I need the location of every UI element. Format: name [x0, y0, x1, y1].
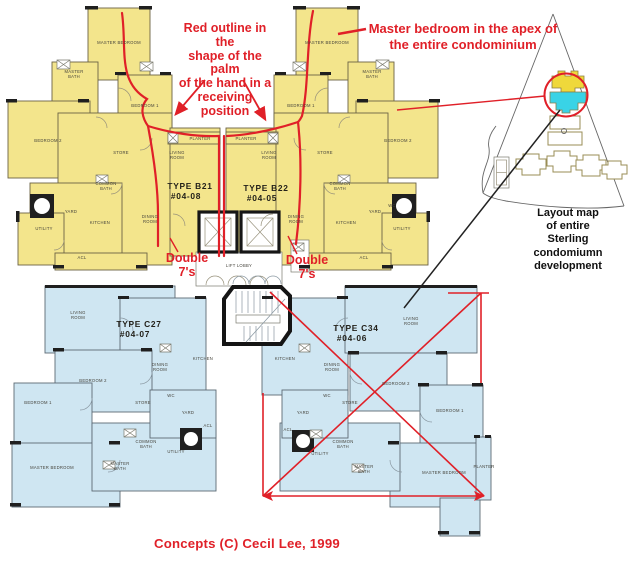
text-line: Double — [161, 251, 213, 265]
room-label: BEDROOM 2 — [79, 378, 107, 383]
room-label: PLANTER — [473, 464, 494, 469]
room-label: ROOM — [143, 219, 157, 224]
room-label: BATH — [68, 74, 80, 79]
room-label: YARD — [182, 410, 194, 415]
room-label: BATH — [358, 469, 370, 474]
master-bedroom-annotation: Master bedroom in the apex ofthe entire … — [366, 21, 560, 52]
double-sevens-right-label: Double7's — [281, 253, 333, 281]
room-label: PLANTER — [235, 136, 256, 141]
room-label: UTILITY — [35, 226, 52, 231]
room-label: UTILITY — [311, 451, 328, 456]
room-label: STORE — [135, 400, 151, 405]
unit-type-label: TYPE C27 — [116, 319, 161, 329]
staircase — [224, 276, 290, 344]
unit-type-label: TYPE B22 — [243, 183, 288, 193]
room-label: UTILITY — [393, 226, 410, 231]
unit-type-label: TYPE C34 — [333, 323, 378, 333]
credit-line: Concepts (C) Cecil Lee, 1999 — [154, 536, 340, 551]
room-label: ACL — [204, 423, 213, 428]
room-label: ROOM — [325, 367, 339, 372]
room-label: ROOM — [289, 219, 303, 224]
room-label: KITCHEN — [336, 220, 356, 225]
text-line: 7's — [281, 267, 333, 281]
room-label: LIFT LOBBY — [226, 263, 252, 268]
unit-number-label: #04-07 — [120, 329, 150, 339]
room-label: KITCHEN — [193, 356, 213, 361]
room-label: ACL — [360, 255, 369, 260]
room-label: MASTER BEDROOM — [97, 40, 141, 45]
room-label: YARD — [297, 410, 309, 415]
text-line: shape of the palm — [175, 50, 275, 78]
text-line: Sterling — [519, 233, 617, 246]
unit-number-label: #04-05 — [247, 193, 277, 203]
text-line: of entire — [519, 220, 617, 233]
room-label: WC — [167, 393, 174, 398]
map-buildings — [516, 71, 627, 179]
palm-annotation: Red outline in theshape of the palmof th… — [175, 22, 275, 119]
room-label: BATH — [366, 74, 378, 79]
room-label: BATH — [337, 444, 349, 449]
room-label: STORE — [317, 150, 333, 155]
room-label: BEDROOM 2 — [384, 138, 412, 143]
room-label: UTILITY — [167, 449, 184, 454]
text-line: Master bedroom in the apex of — [366, 21, 560, 37]
room-label: MASTER BEDROOM — [305, 40, 349, 45]
washer-fixture-icon — [180, 428, 314, 452]
floorplan-diagram: MASTER BEDROOMMASTERBATHBEDROOM 1BEDROOM… — [0, 0, 634, 564]
room-label: MASTER BEDROOM — [30, 465, 74, 470]
unit-type-label: TYPE B21 — [167, 181, 212, 191]
floorplan-svg: MASTER BEDROOMMASTERBATHBEDROOM 1BEDROOM… — [0, 0, 634, 564]
room-label: ROOM — [170, 155, 184, 160]
unit-number-label: #04-08 — [171, 191, 201, 201]
room-label: ROOM — [404, 321, 418, 326]
room-label: KITCHEN — [90, 220, 110, 225]
room-label: YARD — [65, 209, 77, 214]
room-label: ACL — [78, 255, 87, 260]
room-label: STORE — [342, 400, 358, 405]
room-label: ROOM — [71, 315, 85, 320]
room-label: BATH — [100, 186, 112, 191]
text-line: receiving position — [175, 91, 275, 119]
room-label: BEDROOM 1 — [131, 103, 159, 108]
text-line: development — [519, 260, 617, 273]
unit-number-label: #04-06 — [337, 333, 367, 343]
room-label: BEDROOM 2 — [34, 138, 62, 143]
text-line: Red outline in the — [175, 22, 275, 50]
text-line: condomiumn — [519, 247, 617, 260]
room-label: BEDROOM 2 — [382, 381, 410, 386]
text-line: Layout map — [519, 207, 617, 220]
text-line: of the hand in a — [175, 77, 275, 91]
double-sevens-left-label: Double7's — [161, 251, 213, 279]
room-label: PLANTER — [189, 136, 210, 141]
room-label: WC — [323, 393, 330, 398]
room-label: BEDROOM 1 — [287, 103, 315, 108]
room-label: BATH — [140, 444, 152, 449]
room-label: BATH — [334, 186, 346, 191]
room-label: BEDROOM 1 — [436, 408, 464, 413]
room-label: ROOM — [262, 155, 276, 160]
room-label: BATH — [114, 466, 126, 471]
text-line: 7's — [161, 265, 213, 279]
room-label: ACL — [284, 427, 293, 432]
room-label: STORE — [113, 150, 129, 155]
room-label: BEDROOM 1 — [24, 400, 52, 405]
room-label: KITCHEN — [275, 356, 295, 361]
room-label: WC — [388, 203, 395, 208]
room-label: MASTER BEDROOM — [422, 470, 466, 475]
text-line: Double — [281, 253, 333, 267]
text-line: the entire condominium — [366, 37, 560, 53]
site-map-caption: Layout mapof entireSterlingcondomiumndev… — [519, 207, 617, 273]
room-label: ROOM — [153, 367, 167, 372]
room-label: YARD — [369, 209, 381, 214]
